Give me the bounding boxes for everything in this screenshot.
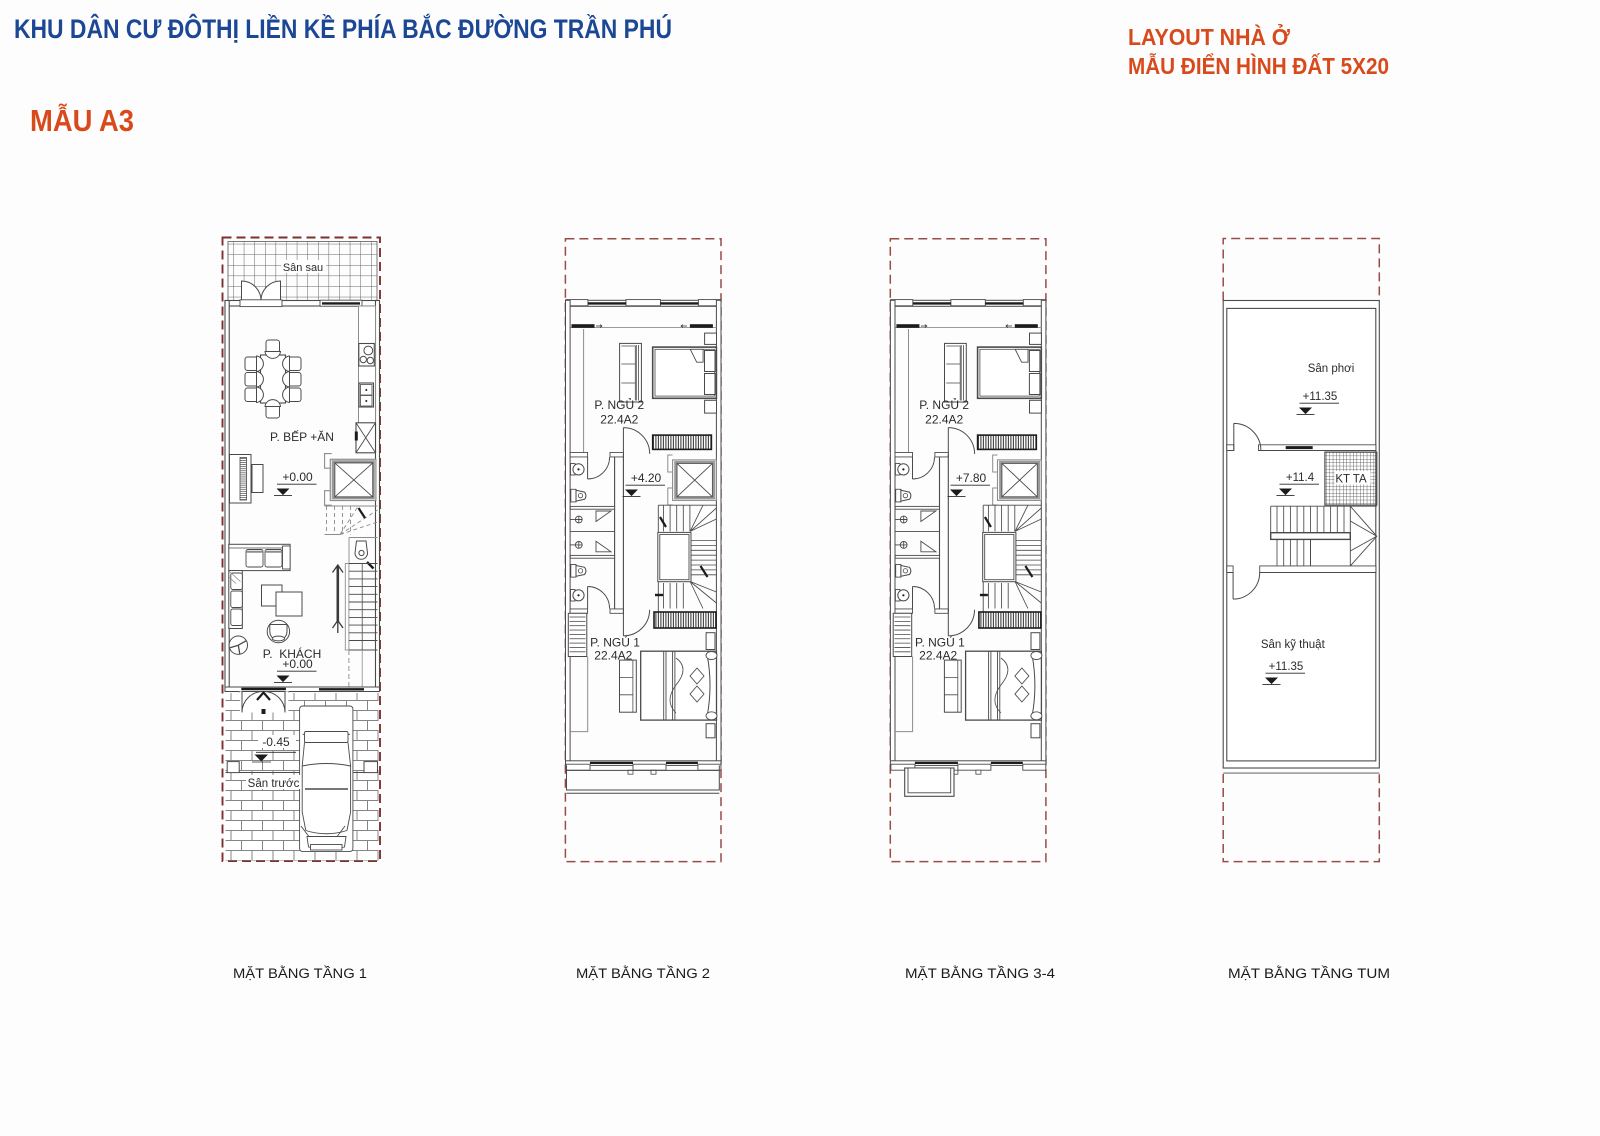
svg-text:LAYOUT NHÀ Ở: LAYOUT NHÀ Ở xyxy=(1128,22,1290,50)
svg-text:MẶT BẰNG TẦNG TUM: MẶT BẰNG TẦNG TUM xyxy=(1228,966,1390,981)
svg-text:+4.20: +4.20 xyxy=(631,471,662,485)
svg-text:Sân sau: Sân sau xyxy=(283,262,323,274)
svg-text:Sân trước: Sân trước xyxy=(248,778,300,790)
svg-text:Sân phơi: Sân phơi xyxy=(1308,363,1355,375)
svg-text:P. NGỦ 2: P. NGỦ 2 xyxy=(594,397,644,412)
svg-text:P. NGỦ 1: P. NGỦ 1 xyxy=(915,635,965,650)
svg-text:MẪU A3: MẪU A3 xyxy=(30,103,134,138)
svg-text:KHU DÂN CƯ ĐÔTHỊ LIỀN KỀ PHÍA: KHU DÂN CƯ ĐÔTHỊ LIỀN KỀ PHÍA BẮC ĐƯỜNG … xyxy=(14,13,672,44)
svg-text:MẶT BẰNG TẦNG 1: MẶT BẰNG TẦNG 1 xyxy=(233,966,367,981)
svg-text:-0.45: -0.45 xyxy=(262,735,290,749)
svg-text:Sân kỹ thuật: Sân kỹ thuật xyxy=(1261,639,1326,651)
svg-text:+0.00: +0.00 xyxy=(282,657,313,671)
svg-text:MẪU ĐIỂN HÌNH ĐẤT 5X20: MẪU ĐIỂN HÌNH ĐẤT 5X20 xyxy=(1128,51,1389,79)
svg-text:P. BẾP +ĂN: P. BẾP +ĂN xyxy=(270,429,334,444)
svg-text:+11.35: +11.35 xyxy=(1269,661,1304,673)
svg-text:+11.35: +11.35 xyxy=(1303,391,1338,403)
svg-text:P. NGỦ 2: P. NGỦ 2 xyxy=(919,397,969,412)
svg-text:P. NGỦ 1: P. NGỦ 1 xyxy=(590,635,640,650)
svg-text:+11.4: +11.4 xyxy=(1286,472,1315,484)
svg-text:22.4A2: 22.4A2 xyxy=(925,413,963,427)
svg-text:MẶT BẰNG TẦNG 3-4: MẶT BẰNG TẦNG 3-4 xyxy=(905,966,1056,981)
svg-text:MẶT BẰNG TẦNG 2: MẶT BẰNG TẦNG 2 xyxy=(576,966,710,981)
svg-text:+7.80: +7.80 xyxy=(956,471,987,485)
svg-text:+0.00: +0.00 xyxy=(282,470,313,484)
svg-text:KT TA: KT TA xyxy=(1335,474,1367,486)
svg-text:22.4A2: 22.4A2 xyxy=(600,413,638,427)
